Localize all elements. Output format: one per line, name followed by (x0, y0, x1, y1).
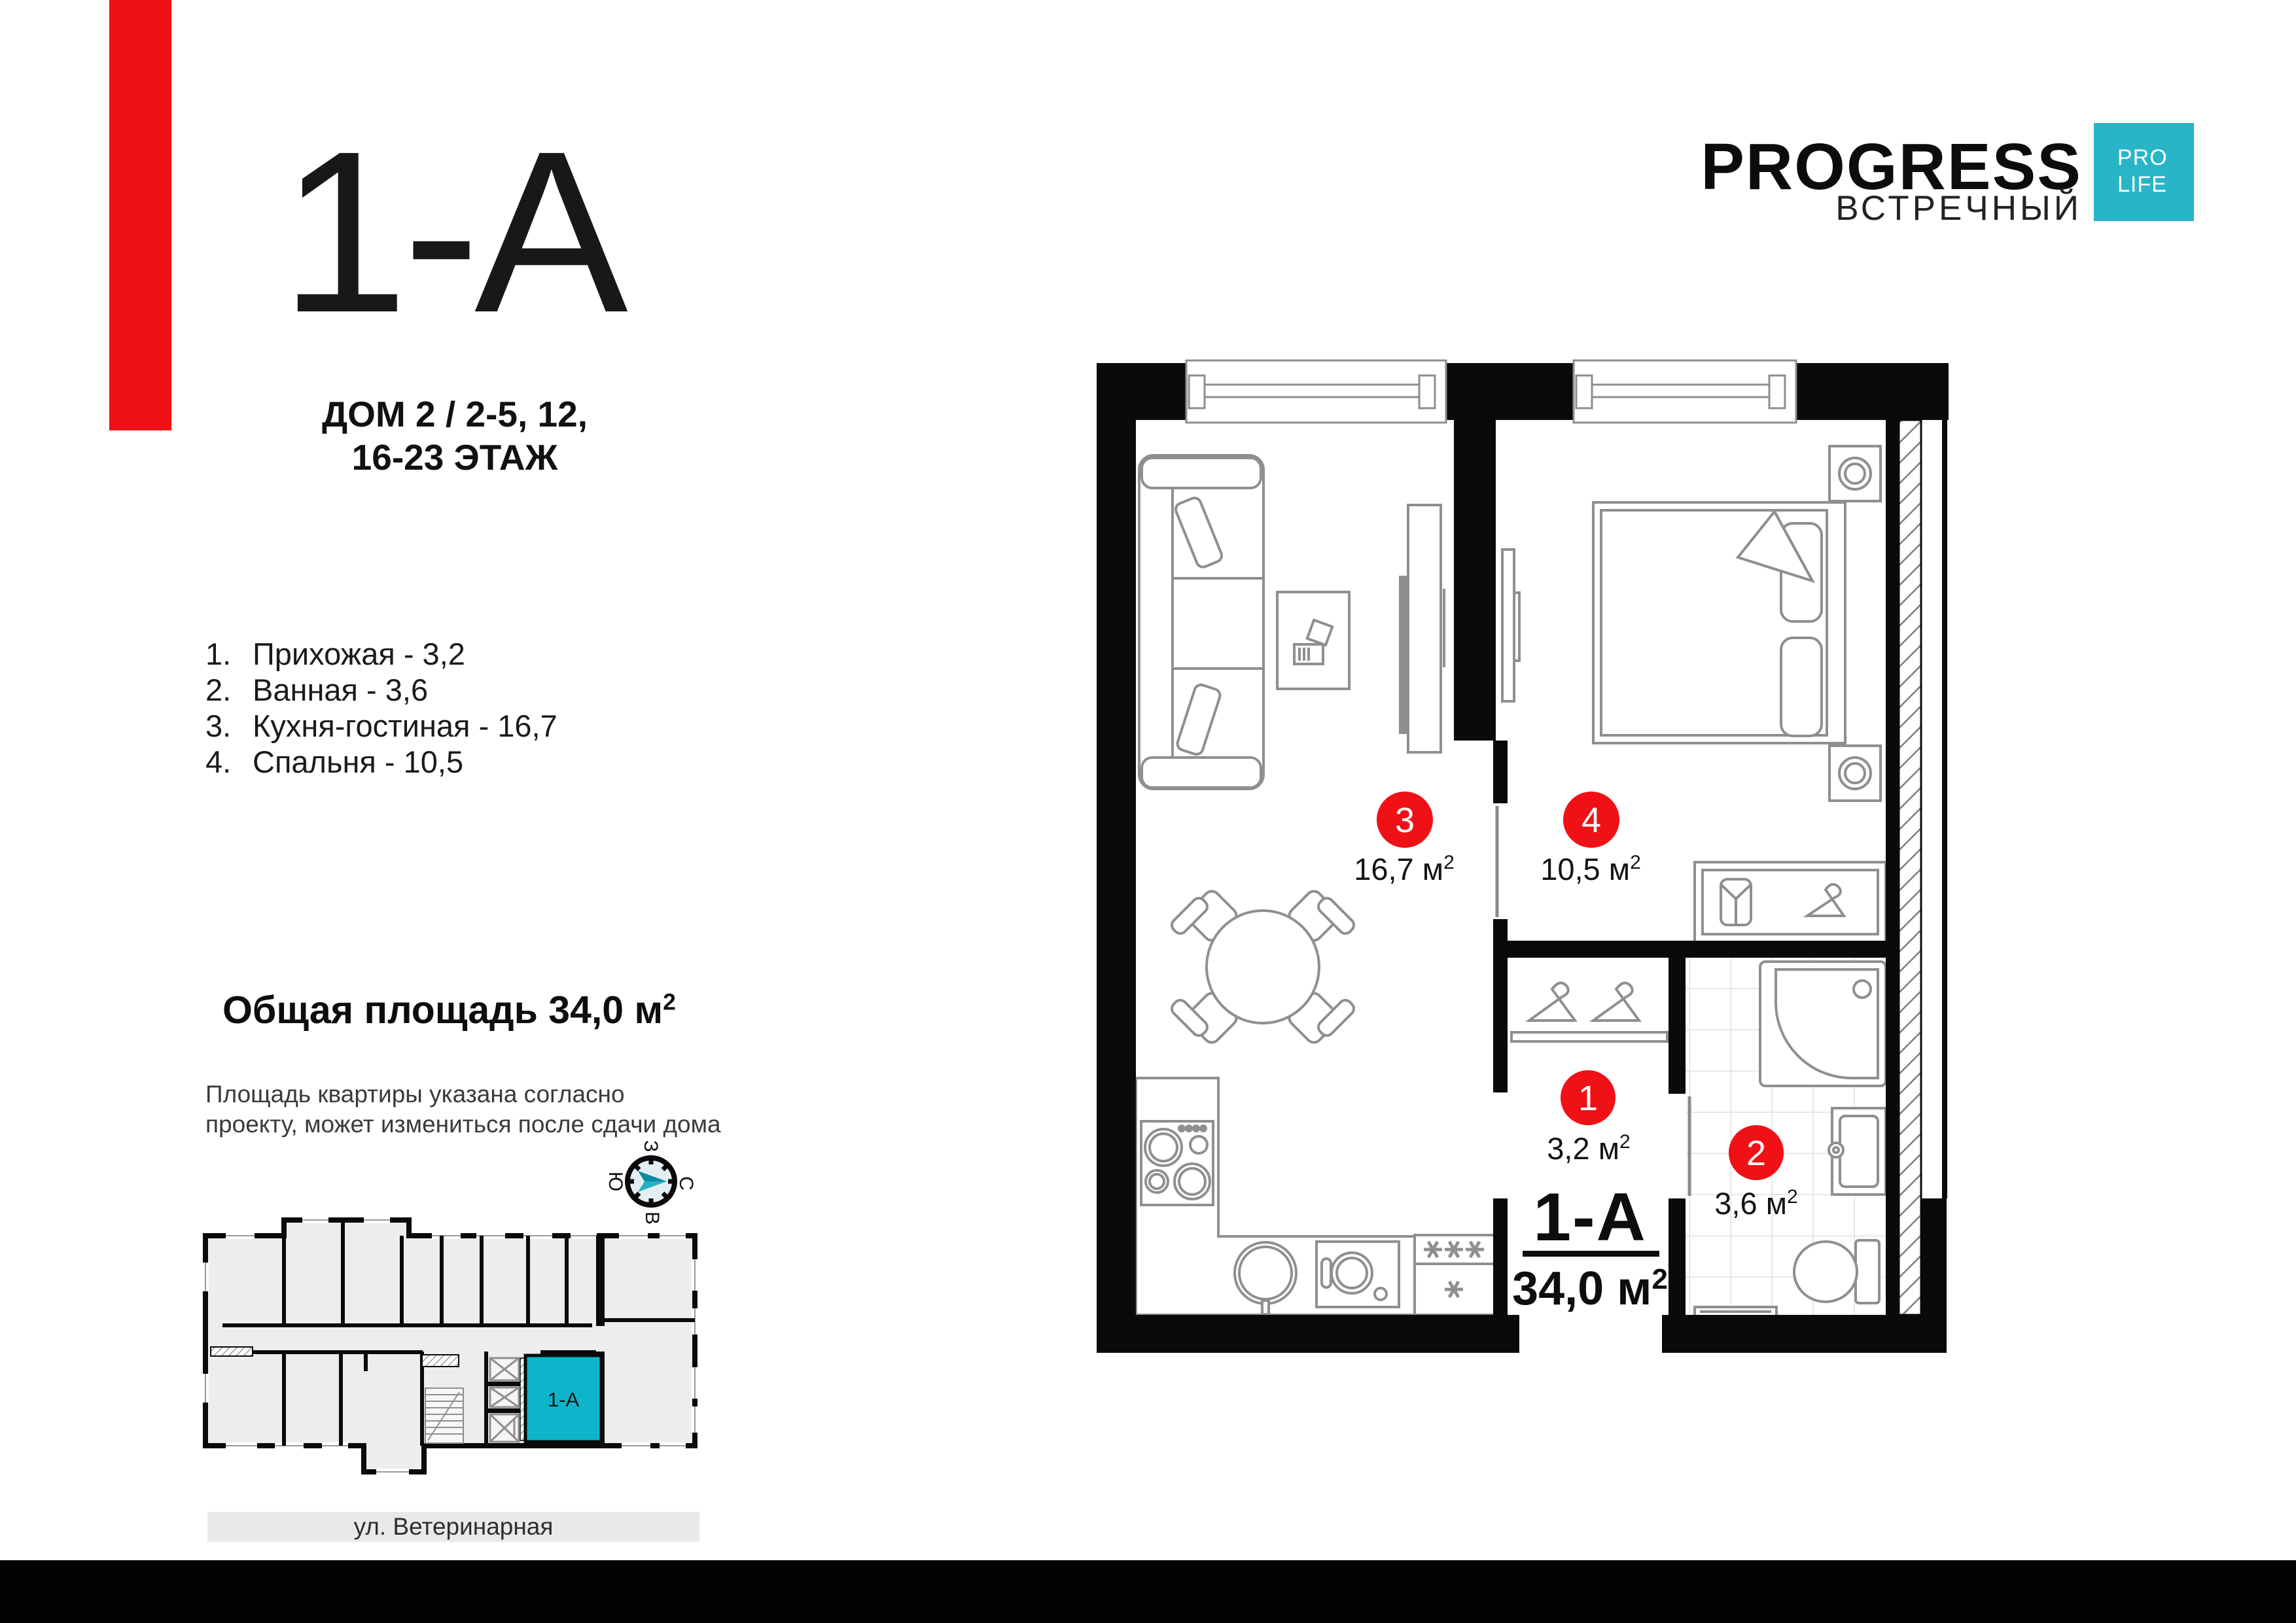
room-label: Ванная - 3,6 (253, 672, 428, 708)
accent-red-bar (109, 0, 171, 430)
pro-life-badge: PRO LIFE (2094, 123, 2194, 221)
room-label: Кухня-гостиная - 16,7 (253, 708, 557, 744)
building-info-line2: 16-23 ЭТАЖ (236, 436, 674, 479)
bathroom-sink-icon (1829, 1108, 1886, 1195)
highlighted-unit-label: 1-А (548, 1388, 580, 1411)
flat-card-page: 1-А ДОМ 2 / 2-5, 12, 16-23 ЭТАЖ 1. Прихо… (0, 0, 2296, 1623)
unit-area-label: 34,0 м2 (1512, 1263, 1668, 1315)
wardrobe-icon (1695, 862, 1886, 942)
unit-underline (1523, 1251, 1659, 1257)
footer-bar (0, 1560, 2296, 1623)
street-label-bar: ул. Ветеринарная (207, 1512, 699, 1542)
floor-overview-plan: 1-А (196, 1213, 710, 1478)
compass-west: З (640, 1140, 662, 1152)
mini-hatch-stair (422, 1355, 459, 1367)
room-label: Прихожая - 3,2 (253, 636, 465, 672)
cooktop-icon (1141, 1121, 1213, 1205)
room-number: 4. (205, 744, 253, 780)
list-item: 1. Прихожая - 3,2 (205, 636, 557, 672)
total-area-heading: Общая площадь 34,0 м2 (222, 988, 676, 1032)
project-name: ВСТРЕЧНЫЙ (1835, 188, 2082, 228)
unit-summary-label: 1-А 34,0 м2 (1512, 1179, 1668, 1315)
tv-unit-icon (1400, 505, 1444, 752)
shower-icon (1760, 962, 1886, 1086)
room-area-label: 3,6 м2 (1714, 1186, 1797, 1221)
toilet-icon (1794, 1240, 1879, 1303)
badge-line1: PRO (2117, 145, 2194, 171)
stairs-icon (425, 1388, 463, 1443)
room-area-label: 10,5 м2 (1540, 852, 1641, 886)
unit-code-label: 1-А (1533, 1179, 1647, 1255)
room-list: 1. Прихожая - 3,2 2. Ванная - 3,6 3. Кух… (205, 636, 557, 780)
disclaimer-text: Площадь квартиры указана согласно проект… (205, 1079, 721, 1140)
sofa-icon (1139, 455, 1263, 789)
list-item: 2. Ванная - 3,6 (205, 672, 557, 708)
washing-machine-icon (1316, 1242, 1399, 1307)
bath-bench-icon (1695, 1307, 1776, 1316)
svg-text:2: 2 (1746, 1134, 1766, 1173)
list-item: 4. Спальня - 10,5 (205, 744, 557, 780)
room-number: 3. (205, 708, 253, 744)
sup-2: 2 (663, 988, 676, 1015)
compass-south: Ю (605, 1172, 626, 1191)
compass-north: С (675, 1176, 697, 1191)
bed-icon (1593, 502, 1845, 743)
side-table-icon (1277, 592, 1349, 689)
fridge-icon (1415, 1235, 1496, 1315)
room-label: Спальня - 10,5 (253, 744, 463, 780)
mini-hatch-left (211, 1347, 253, 1356)
street-name: ул. Ветеринарная (354, 1513, 554, 1540)
list-item: 3. Кухня-гостиная - 16,7 (205, 708, 557, 744)
building-info: ДОМ 2 / 2-5, 12, 16-23 ЭТАЖ (236, 393, 674, 479)
svg-text:1: 1 (1578, 1079, 1598, 1118)
building-info-line1: ДОМ 2 / 2-5, 12, (236, 393, 674, 436)
svg-text:3: 3 (1395, 801, 1415, 840)
room-number: 2. (205, 672, 253, 708)
balcony-hatch-wall (1899, 420, 1921, 1315)
window-icon (1574, 360, 1796, 423)
badge-line2: LIFE (2117, 171, 2194, 198)
window-icon (1186, 360, 1446, 423)
room-area-label: 16,7 м2 (1354, 852, 1455, 886)
svg-text:4: 4 (1581, 801, 1601, 840)
room-area-label: 3,2 м2 (1547, 1131, 1630, 1166)
page-title: 1-А (275, 116, 628, 347)
room-number: 1. (205, 636, 253, 672)
elevators-icon (490, 1358, 519, 1442)
apartment-floor-plan: 3 16,7 м2 4 10,5 м2 1 3,2 м2 2 3,6 м2 1-… (1047, 327, 1976, 1387)
